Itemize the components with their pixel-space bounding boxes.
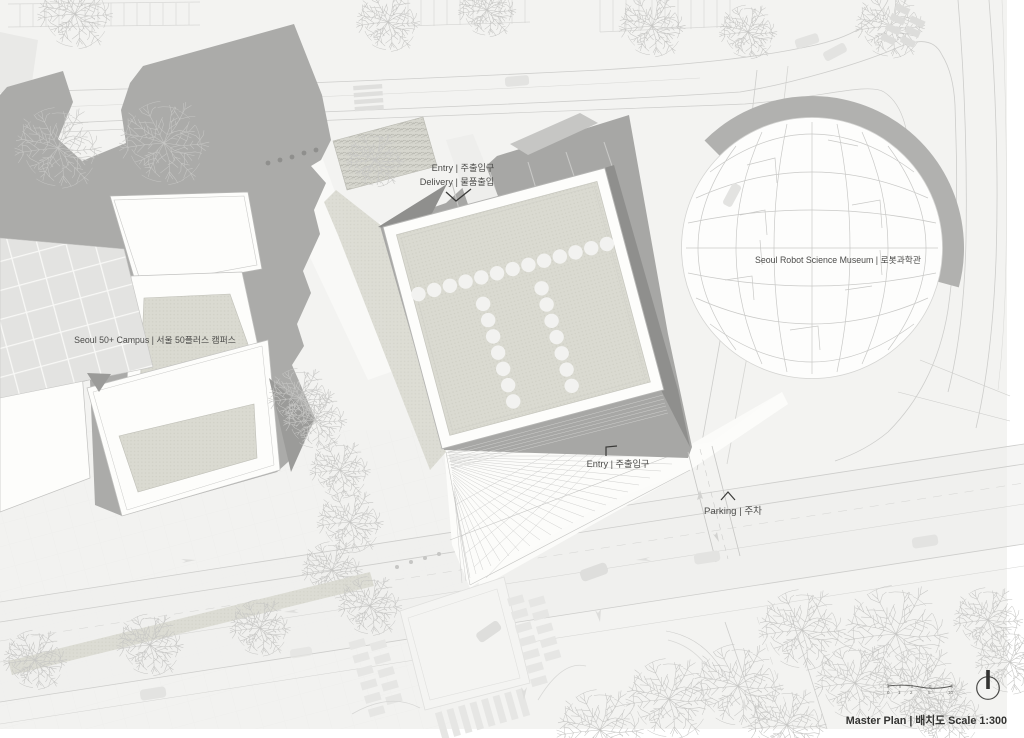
- svg-text:Delivery | 물품출입: Delivery | 물품출입: [420, 176, 495, 187]
- svg-text:Master Plan | 배치도 Scale 1:30: Master Plan | 배치도 Scale 1:300: [846, 713, 1007, 727]
- svg-text:10: 10: [948, 690, 954, 695]
- svg-text:Parking | 주차: Parking | 주차: [704, 505, 762, 517]
- svg-text:Entry | 주출입구: Entry | 주출입구: [587, 458, 650, 469]
- svg-text:Entry | 주출입구: Entry | 주출입구: [432, 162, 495, 173]
- svg-text:Seoul Robot Science Museum | 로: Seoul Robot Science Museum | 로봇과학관: [755, 255, 921, 265]
- svg-text:Seoul 50+ Campus | 서울 50플러스 캠퍼: Seoul 50+ Campus | 서울 50플러스 캠퍼스: [74, 334, 236, 345]
